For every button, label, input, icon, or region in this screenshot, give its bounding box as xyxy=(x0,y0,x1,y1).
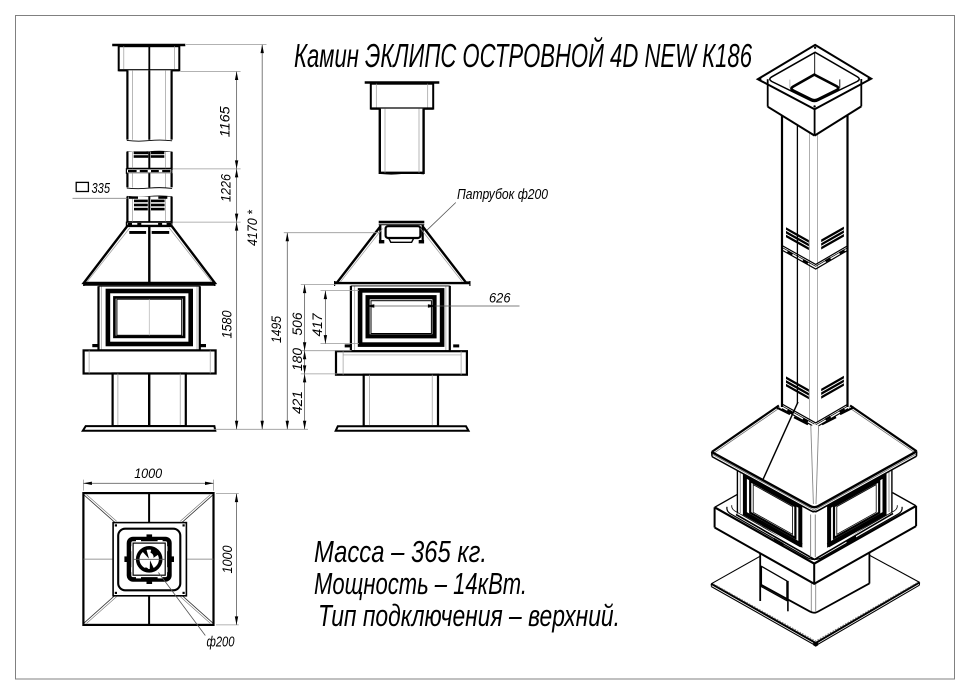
svg-text:1580: 1580 xyxy=(218,310,234,338)
svg-text:421: 421 xyxy=(289,391,305,414)
svg-text:1226: 1226 xyxy=(218,174,234,202)
svg-text:ф200: ф200 xyxy=(207,635,235,651)
svg-text:1495: 1495 xyxy=(268,316,284,343)
svg-text:1000: 1000 xyxy=(134,465,162,481)
svg-text:Патрубок ф200: Патрубок ф200 xyxy=(457,187,548,203)
svg-text:Масса – 365 кг.: Масса – 365 кг. xyxy=(314,535,487,569)
svg-text:1000: 1000 xyxy=(219,545,235,573)
svg-text:1165: 1165 xyxy=(217,106,233,137)
svg-text:Мощность – 14кВт.: Мощность – 14кВт. xyxy=(314,567,527,601)
svg-text:335: 335 xyxy=(92,181,111,197)
svg-text:506: 506 xyxy=(289,312,305,335)
svg-text:Тип подключения – верхний.: Тип подключения – верхний. xyxy=(318,599,620,633)
svg-text:Камин ЭКЛИПС ОСТРОВНОЙ 4D NEW: Камин ЭКЛИПС ОСТРОВНОЙ 4D NEW К186 xyxy=(294,36,752,74)
svg-text:180: 180 xyxy=(289,348,305,371)
svg-text:417: 417 xyxy=(309,312,325,336)
svg-text:626: 626 xyxy=(489,290,511,306)
svg-text:4170 *: 4170 * xyxy=(244,210,260,246)
